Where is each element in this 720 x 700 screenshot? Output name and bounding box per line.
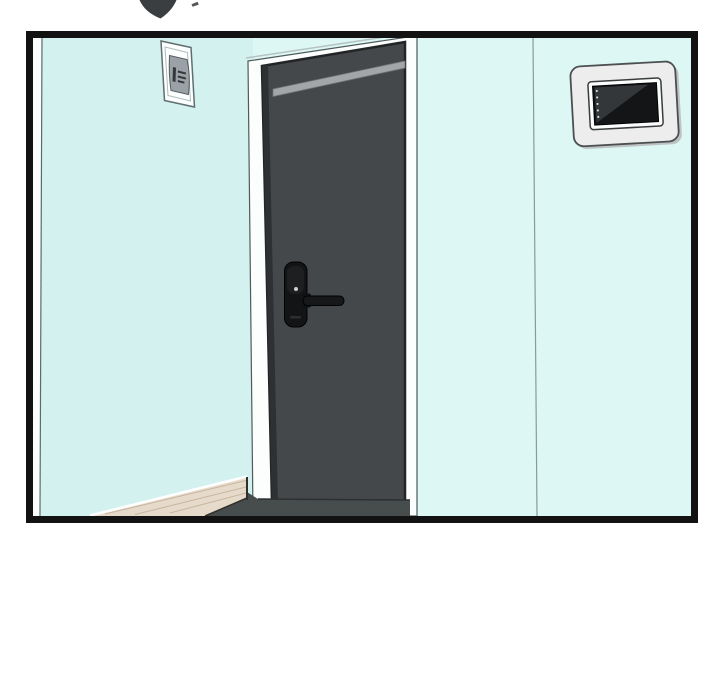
wall-sign-mark-bar <box>173 67 177 82</box>
door <box>262 42 405 503</box>
wall-sign-plate <box>169 56 189 95</box>
threshold-front-line <box>258 499 410 500</box>
comic-panel-scene <box>0 0 720 700</box>
left-wall <box>41 38 253 516</box>
door-slab <box>262 42 405 503</box>
wall-sign <box>161 41 195 107</box>
page <box>0 0 720 700</box>
sfx-fragment-small-icon <box>192 2 199 7</box>
intercom-panel <box>570 61 682 150</box>
panel-interior <box>33 34 691 517</box>
door-lock-keyway <box>290 316 301 319</box>
door-lever-handle <box>303 296 344 306</box>
door-lock-indicator-dot <box>294 287 298 291</box>
sfx-fragment-icon <box>140 0 177 19</box>
